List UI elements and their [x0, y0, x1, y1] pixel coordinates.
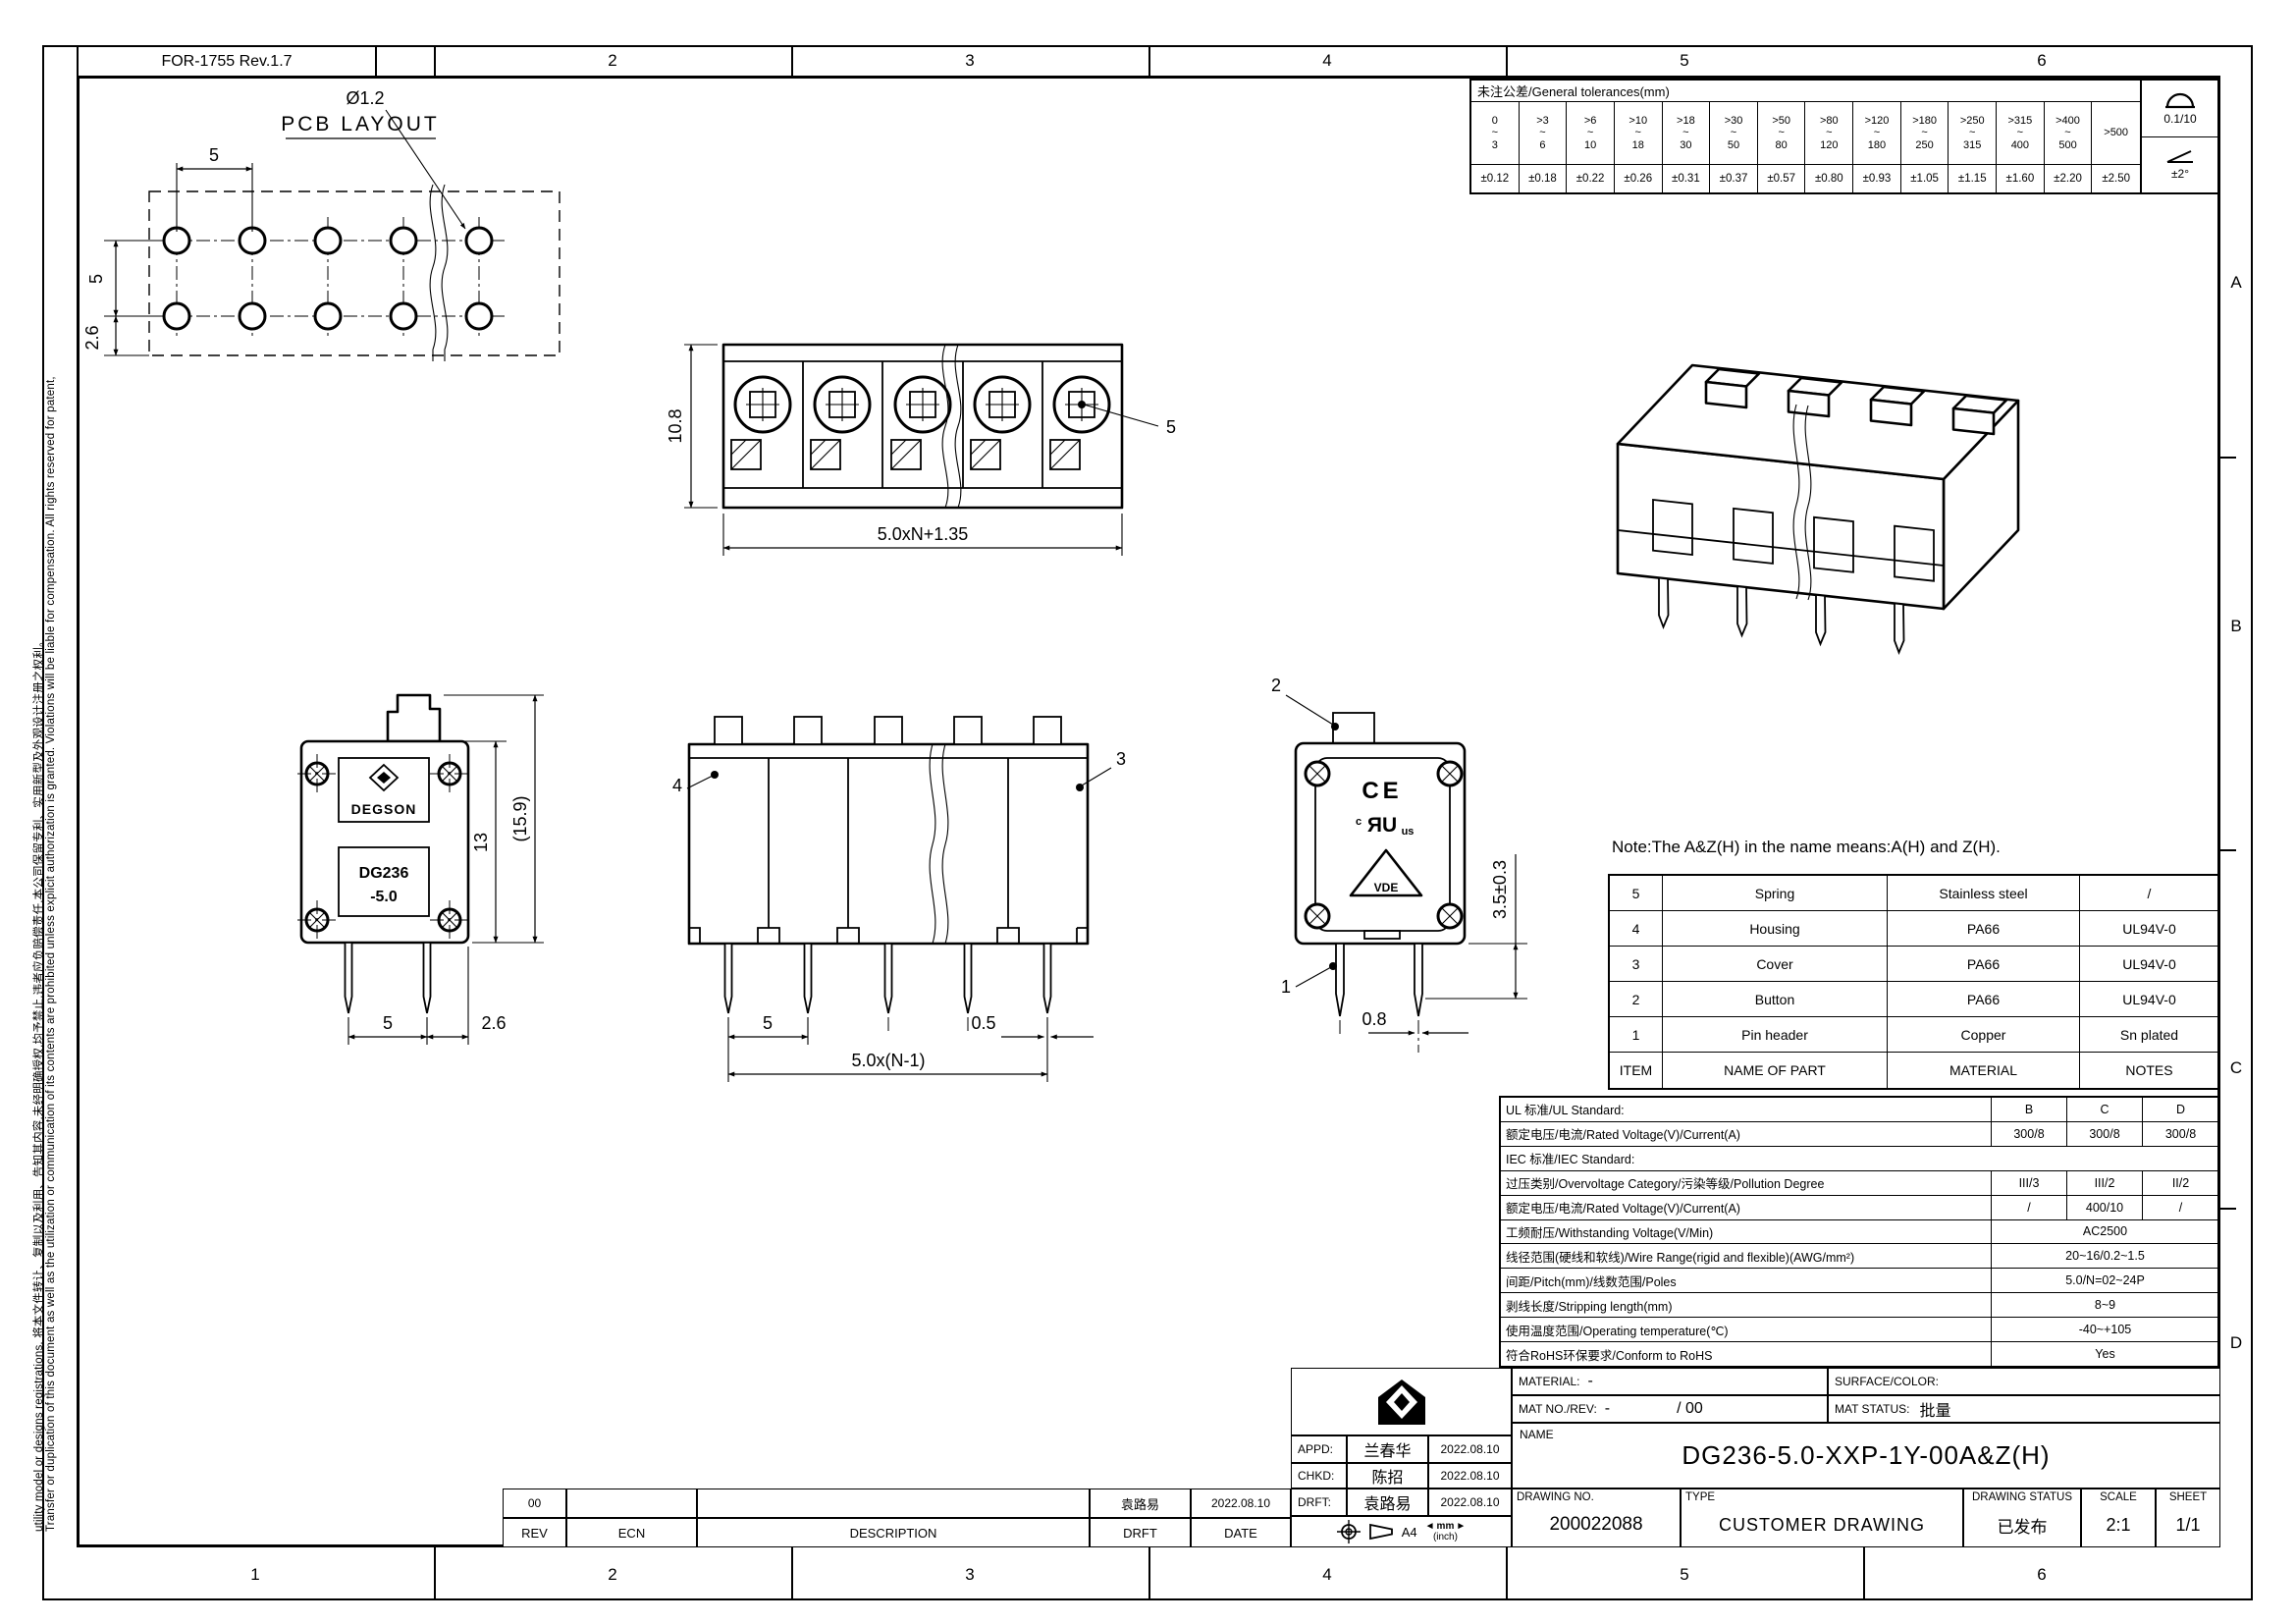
angle-icon [2165, 148, 2195, 164]
sheet-value: 1/1 [2157, 1503, 2219, 1546]
tol-range: 0 ~ 3 [1471, 102, 1520, 165]
bom-name: Cover [1663, 947, 1888, 982]
flatness-icon [2163, 91, 2197, 109]
spec-value: 400/10 [2067, 1196, 2143, 1219]
drft-label: DRFT: [1291, 1489, 1347, 1516]
surface-cell: SURFACE/COLOR: [1828, 1368, 2220, 1395]
bom-notes: / [2080, 876, 2218, 911]
bom-material: PA66 [1888, 947, 2080, 982]
tol-value: ±0.12 [1471, 165, 1520, 192]
angle-tol-value: ±2° [2171, 167, 2189, 181]
spec-label: 过压类别/Overvoltage Category/污染等级/Pollution… [1501, 1171, 1992, 1195]
tol-value: ±0.80 [1805, 165, 1853, 192]
bom-header-name: NAME OF PART [1663, 1053, 1888, 1088]
arrow-left-icon: ◄ [1425, 1521, 1435, 1532]
isometric-view [1618, 365, 2018, 653]
drft-name: 袁路易 [1347, 1489, 1428, 1516]
bom-material: Copper [1888, 1017, 2080, 1053]
bom-header-notes: NOTES [2080, 1053, 2218, 1088]
bom-name: Button [1663, 982, 1888, 1017]
drawing-sheet: FOR-1755 Rev.1.7 2 3 4 5 6 1 2 3 4 5 6 A… [0, 0, 2296, 1624]
units-indicator: ◄mm► (inch) [1425, 1521, 1467, 1543]
sheet-cell: SHEET1/1 [2156, 1489, 2220, 1547]
front-dim-width: 5.0xN+1.35 [878, 524, 969, 544]
spec-value: III/3 [1992, 1171, 2067, 1195]
tol-range: >10 ~ 18 [1615, 102, 1663, 165]
chkd-date: 2022.08.10 [1428, 1463, 1512, 1489]
tol-value: ±0.57 [1758, 165, 1806, 192]
tol-range: >315 ~ 400 [1997, 102, 2045, 165]
spec-label: 符合RoHS环保要求/Conform to RoHS [1501, 1342, 1992, 1366]
front-view: 10.8 5.0xN+1.35 5 [666, 345, 1176, 556]
bom-table: 5SpringStainless steel/ 4HousingPA66UL94… [1608, 874, 2220, 1090]
spec-label: 工频耐压/Withstanding Voltage(V/Min) [1501, 1220, 1992, 1244]
side-dim-overall: (15.9) [510, 795, 530, 841]
tol-range: >120 ~ 180 [1853, 102, 1901, 165]
drft-header: DRFT [1090, 1518, 1191, 1547]
pcb-dim-edge: 2.6 [82, 325, 102, 350]
tol-range: >80 ~ 120 [1805, 102, 1853, 165]
tol-value: ±0.22 [1567, 165, 1615, 192]
back-pins [1336, 944, 1422, 1053]
rear-dim-span: 5.0x(N-1) [851, 1051, 925, 1070]
rear-dim-pin-width: 0.5 [971, 1013, 995, 1033]
spec-value: 5.0/N=02~24P [1992, 1269, 2218, 1292]
spec-table: UL 标准/UL Standard:BCD 额定电压/电流/Rated Volt… [1499, 1096, 2220, 1368]
bom-item: 4 [1610, 911, 1663, 947]
tol-value: ±0.93 [1853, 165, 1901, 192]
tol-range: >3 ~ 6 [1520, 102, 1568, 165]
back-view: CE c ЯU us VDE 2 1 3.5±0.3 [1271, 676, 1527, 1053]
side-dim-pitch: 5 [383, 1013, 393, 1033]
spec-label: UL 标准/UL Standard: [1501, 1098, 1992, 1121]
scale-value: 2:1 [2082, 1503, 2155, 1546]
rear-view: 4 3 5 5.0x(N-1) 0.5 [672, 717, 1126, 1082]
description-header: DESCRIPTION [697, 1518, 1090, 1547]
tol-value: ±0.26 [1615, 165, 1663, 192]
scale-cell: SCALE2:1 [2081, 1489, 2156, 1547]
tol-value: ±1.05 [1901, 165, 1949, 192]
first-angle-projection-icon [1337, 1520, 1361, 1543]
tol-range: >180 ~ 250 [1901, 102, 1949, 165]
pcb-layout-title: PCB LAYOUT [281, 113, 439, 135]
bom-notes: Sn plated [2080, 1017, 2218, 1053]
projection-row: A4 ◄mm► (inch) [1291, 1516, 1512, 1547]
rev-value-cell: 00 [503, 1489, 566, 1518]
spec-col-d: D [2143, 1098, 2218, 1121]
tolerance-grid: 0 ~ 3>3 ~ 6>6 ~ 10>10 ~ 18>18 ~ 30>30 ~ … [1471, 102, 2140, 192]
description-value-cell [697, 1489, 1090, 1518]
pcb-dim-pitch: 5 [209, 145, 219, 165]
back-dim-pin-width: 0.8 [1362, 1009, 1386, 1029]
side-marking-2: -5.0 [370, 889, 398, 905]
tol-range: >30 ~ 50 [1710, 102, 1758, 165]
svg-text:us: us [1402, 826, 1415, 838]
tol-value: ±1.60 [1997, 165, 2045, 192]
tol-range: >400 ~ 500 [2045, 102, 2093, 165]
spec-value: 8~9 [1992, 1293, 2218, 1317]
type-value: CUSTOMER DRAWING [1682, 1503, 1962, 1546]
side-marking-1: DG236 [359, 865, 409, 882]
type-cell: TYPECUSTOMER DRAWING [1681, 1489, 1963, 1547]
drawing-note: Note:The A&Z(H) in the name means:A(H) a… [1612, 838, 2001, 856]
ecn-value-cell [566, 1489, 697, 1518]
pcb-layout-view: PCB LAYOUT 5 5 2.6 Ø1.2 [82, 88, 560, 361]
tolerance-table: 未注公差/General tolerances(mm) 0 ~ 3>3 ~ 6>… [1469, 79, 2220, 194]
status-value: 已发布 [1964, 1503, 2080, 1546]
spec-label: 额定电压/电流/Rated Voltage(V)/Current(A) [1501, 1122, 1992, 1146]
side-dim-body: 13 [471, 833, 491, 852]
bom-material: PA66 [1888, 911, 2080, 947]
rear-leader-housing: 4 [672, 776, 682, 795]
bom-notes: UL94V-0 [2080, 982, 2218, 1017]
bom-header-material: MATERIAL [1888, 1053, 2080, 1088]
chkd-label: CHKD: [1291, 1463, 1347, 1489]
bom-header-item: ITEM [1610, 1053, 1663, 1088]
back-leader-button: 2 [1271, 676, 1281, 695]
spec-label: 额定电压/电流/Rated Voltage(V)/Current(A) [1501, 1196, 1992, 1219]
front-leader-spring: 5 [1166, 417, 1176, 437]
spec-value: AC2500 [1992, 1220, 2218, 1244]
pcb-dim-row: 5 [86, 274, 106, 284]
spec-value: -40~+105 [1992, 1318, 2218, 1341]
spec-label: IEC 标准/IEC Standard: [1501, 1147, 2218, 1170]
part-name-cell: NAME DG236-5.0-XXP-1Y-00A&Z(H) [1512, 1423, 2220, 1489]
spec-value: Yes [1992, 1342, 2218, 1366]
spec-value: 300/8 [2143, 1122, 2218, 1146]
ce-mark: CE [1362, 778, 1402, 804]
svg-text:VDE: VDE [1374, 881, 1399, 894]
bom-item: 1 [1610, 1017, 1663, 1053]
drawing-no-cell: DRAWING NO.200022088 [1512, 1489, 1681, 1547]
degson-logo [1376, 1378, 1427, 1427]
rev-header: REV [503, 1518, 566, 1547]
bom-name: Pin header [1663, 1017, 1888, 1053]
rev-drft-cell: 袁路易 [1090, 1489, 1191, 1518]
appd-label: APPD: [1291, 1435, 1347, 1463]
material-cell: MATERIAL:- [1512, 1368, 1828, 1395]
side-dim-edge: 2.6 [481, 1013, 506, 1033]
tol-value: ±1.15 [1949, 165, 1997, 192]
tolerance-table-title: 未注公差/General tolerances(mm) [1471, 81, 2140, 102]
spec-value: 20~16/0.2~1.5 [1992, 1244, 2218, 1268]
flatness-cell: 0.1/10 [2142, 81, 2218, 137]
date-header: DATE [1191, 1518, 1291, 1547]
tol-value: ±0.37 [1710, 165, 1758, 192]
spec-value: 300/8 [2067, 1122, 2143, 1146]
svg-text:c: c [1356, 816, 1362, 828]
bom-material: Stainless steel [1888, 876, 2080, 911]
tol-value: ±0.31 [1663, 165, 1711, 192]
bom-name: Housing [1663, 911, 1888, 947]
flatness-value: 0.1/10 [2163, 112, 2196, 126]
rear-pins [725, 944, 1051, 1051]
tol-range: >6 ~ 10 [1567, 102, 1615, 165]
chkd-name: 陈招 [1347, 1463, 1428, 1489]
spec-col-c: C [2067, 1098, 2143, 1121]
rev-date-cell: 2022.08.10 [1191, 1489, 1291, 1518]
svg-text:ЯU: ЯU [1367, 814, 1397, 837]
spec-col-b: B [1992, 1098, 2067, 1121]
bom-notes: UL94V-0 [2080, 911, 2218, 947]
side-brand-text: DEGSON [351, 801, 417, 817]
drawing-no: 200022088 [1513, 1503, 1680, 1546]
bom-material: PA66 [1888, 982, 2080, 1017]
tol-value: ±2.20 [2045, 165, 2093, 192]
spec-label: 剥线长度/Stripping length(mm) [1501, 1293, 1992, 1317]
tol-range: >50 ~ 80 [1758, 102, 1806, 165]
tol-range: >250 ~ 315 [1949, 102, 1997, 165]
rear-top-tabs [715, 717, 1061, 744]
name-label: NAME [1520, 1428, 1554, 1441]
spec-label: 使用温度范围/Operating temperature(℃) [1501, 1318, 1992, 1341]
company-logo-cell [1291, 1368, 1512, 1435]
bom-name: Spring [1663, 876, 1888, 911]
bom-notes: UL94V-0 [2080, 947, 2218, 982]
tol-range: >18 ~ 30 [1663, 102, 1711, 165]
spec-value: / [2143, 1196, 2218, 1219]
pcb-hole-dia: Ø1.2 [346, 88, 384, 108]
drft-date: 2022.08.10 [1428, 1489, 1512, 1516]
front-dim-height: 10.8 [666, 408, 685, 443]
status-cell: DRAWING STATUS已发布 [1963, 1489, 2081, 1547]
appd-date: 2022.08.10 [1428, 1435, 1512, 1463]
bom-item: 2 [1610, 982, 1663, 1017]
tol-value: ±0.18 [1520, 165, 1568, 192]
ecn-header: ECN [566, 1518, 697, 1547]
arrow-right-icon: ► [1456, 1521, 1466, 1532]
spec-label: 间距/Pitch(mm)/线数范围/Poles [1501, 1269, 1992, 1292]
paper-size: A4 [1402, 1525, 1417, 1540]
bom-item: 5 [1610, 876, 1663, 911]
back-leader-pin: 1 [1281, 977, 1291, 997]
part-name: DG236-5.0-XXP-1Y-00A&Z(H) [1682, 1440, 2050, 1471]
spec-value: II/2 [2143, 1171, 2218, 1195]
spec-value: 300/8 [1992, 1122, 2067, 1146]
matno-cell: MAT NO./REV:-/ 00 [1512, 1395, 1828, 1423]
rear-leader-cover: 3 [1116, 749, 1126, 769]
rear-dim-pitch: 5 [763, 1013, 773, 1033]
back-dim-pin-length: 3.5±0.3 [1490, 860, 1510, 919]
appd-name: 兰春华 [1347, 1435, 1428, 1463]
spec-label: 线径范围(硬线和软线)/Wire Range(rigid and flexibl… [1501, 1244, 1992, 1268]
matstatus-cell: MAT STATUS:批量 [1828, 1395, 2220, 1423]
projection-cone-icon [1368, 1523, 1394, 1541]
spec-value: / [1992, 1196, 2067, 1219]
angle-tol-cell: ±2° [2142, 137, 2218, 193]
tol-value: ±2.50 [2092, 165, 2140, 192]
spec-value: III/2 [2067, 1171, 2143, 1195]
bom-item: 3 [1610, 947, 1663, 982]
tol-range: >500 [2092, 102, 2140, 165]
side-view: DEGSON DG236 -5.0 13 (15.9) 5 2.6 [297, 695, 544, 1045]
